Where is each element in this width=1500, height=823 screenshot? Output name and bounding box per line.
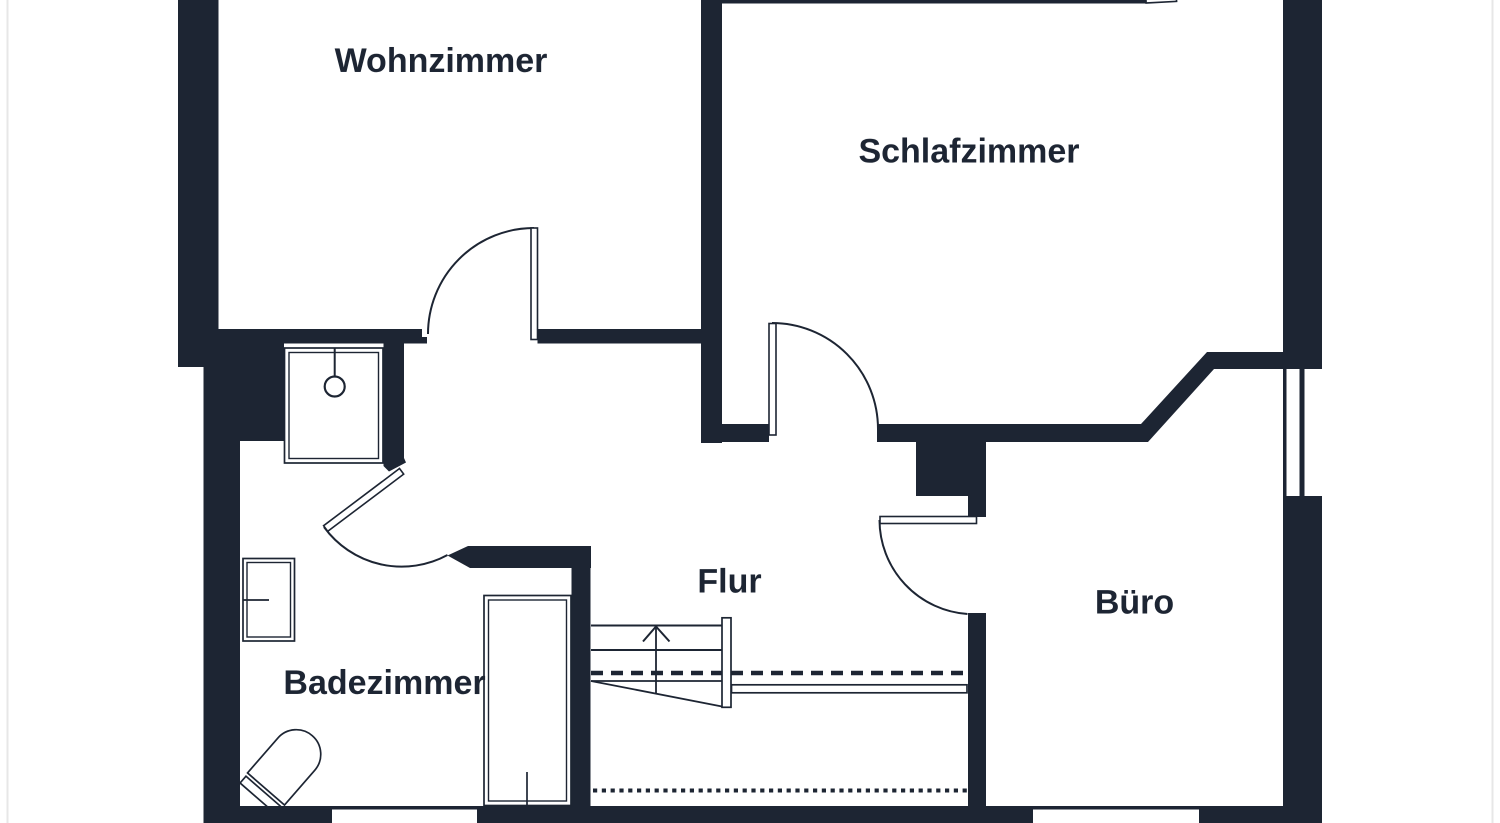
svg-text:Schlafzimmer: Schlafzimmer xyxy=(858,132,1079,170)
svg-text:Flur: Flur xyxy=(697,562,761,600)
svg-text:Büro: Büro xyxy=(1095,583,1174,621)
svg-text:Wohnzimmer: Wohnzimmer xyxy=(335,42,548,80)
svg-text:Badezimmer: Badezimmer xyxy=(283,664,485,702)
